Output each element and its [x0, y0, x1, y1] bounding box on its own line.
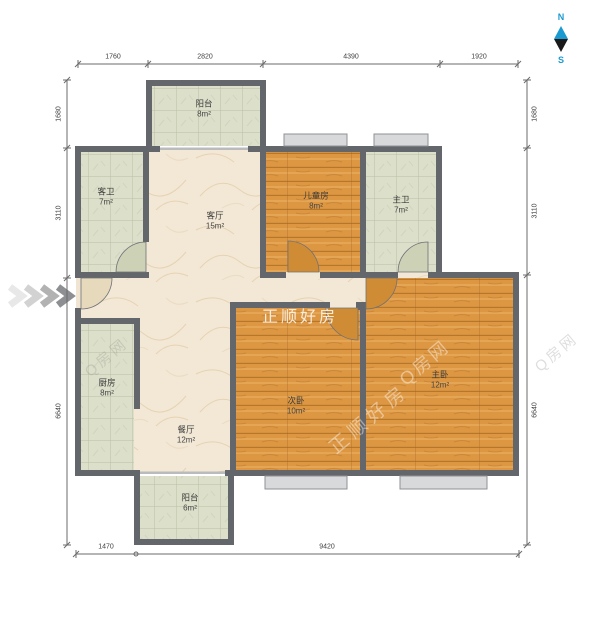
dim-top-4: 1920: [471, 54, 487, 61]
window-icon: [265, 476, 347, 489]
room-label-living-room: 客厅 15m²: [206, 211, 224, 232]
dim-right-2: 3110: [532, 203, 539, 218]
room-label-kids-room: 儿童房 8m²: [303, 191, 329, 212]
floor-plan: 阳台 8m² 客卫 7m² 客厅 15m² 儿童房 8m² 主卫 7m² 厨房 …: [0, 0, 600, 624]
room-label-dining-room: 餐厅 12m²: [177, 425, 195, 446]
dim-right-3: 6640: [532, 402, 539, 418]
room-label-master-bedroom: 主卧 12m²: [431, 370, 449, 391]
compass-south-label: S: [558, 55, 564, 65]
window-icon: [284, 134, 347, 146]
room-label-kitchen: 厨房 8m²: [98, 378, 115, 399]
window-icon: [400, 476, 487, 489]
floor-plan-drawing: [0, 0, 600, 624]
dim-bottom-1: 1470: [98, 544, 114, 551]
dim-top-1: 1760: [105, 54, 121, 61]
dim-right-1: 1680: [532, 106, 539, 122]
room-label-balcony-top: 阳台 8m²: [195, 99, 212, 120]
dim-left-2: 3110: [56, 205, 63, 220]
window-icon: [374, 134, 428, 146]
dim-bottom-2: 9420: [319, 544, 335, 551]
room-label-second-bedroom: 次卧 10m²: [287, 396, 305, 417]
room-label-balcony-bottom: 阳台 6m²: [181, 493, 198, 514]
compass-needle-icon: [554, 26, 568, 52]
dim-top-3: 4390: [343, 54, 359, 61]
dim-left-1: 1680: [56, 106, 63, 122]
dim-left-3: 6640: [56, 403, 63, 419]
room-label-master-bath: 主卫 7m²: [392, 195, 409, 216]
room-label-guest-bath: 客卫 7m²: [97, 187, 114, 208]
dim-top-2: 2820: [197, 54, 213, 61]
entrance-arrow-icon: [10, 287, 70, 305]
compass-north-label: N: [558, 12, 565, 22]
exterior-cutout: [442, 70, 552, 272]
